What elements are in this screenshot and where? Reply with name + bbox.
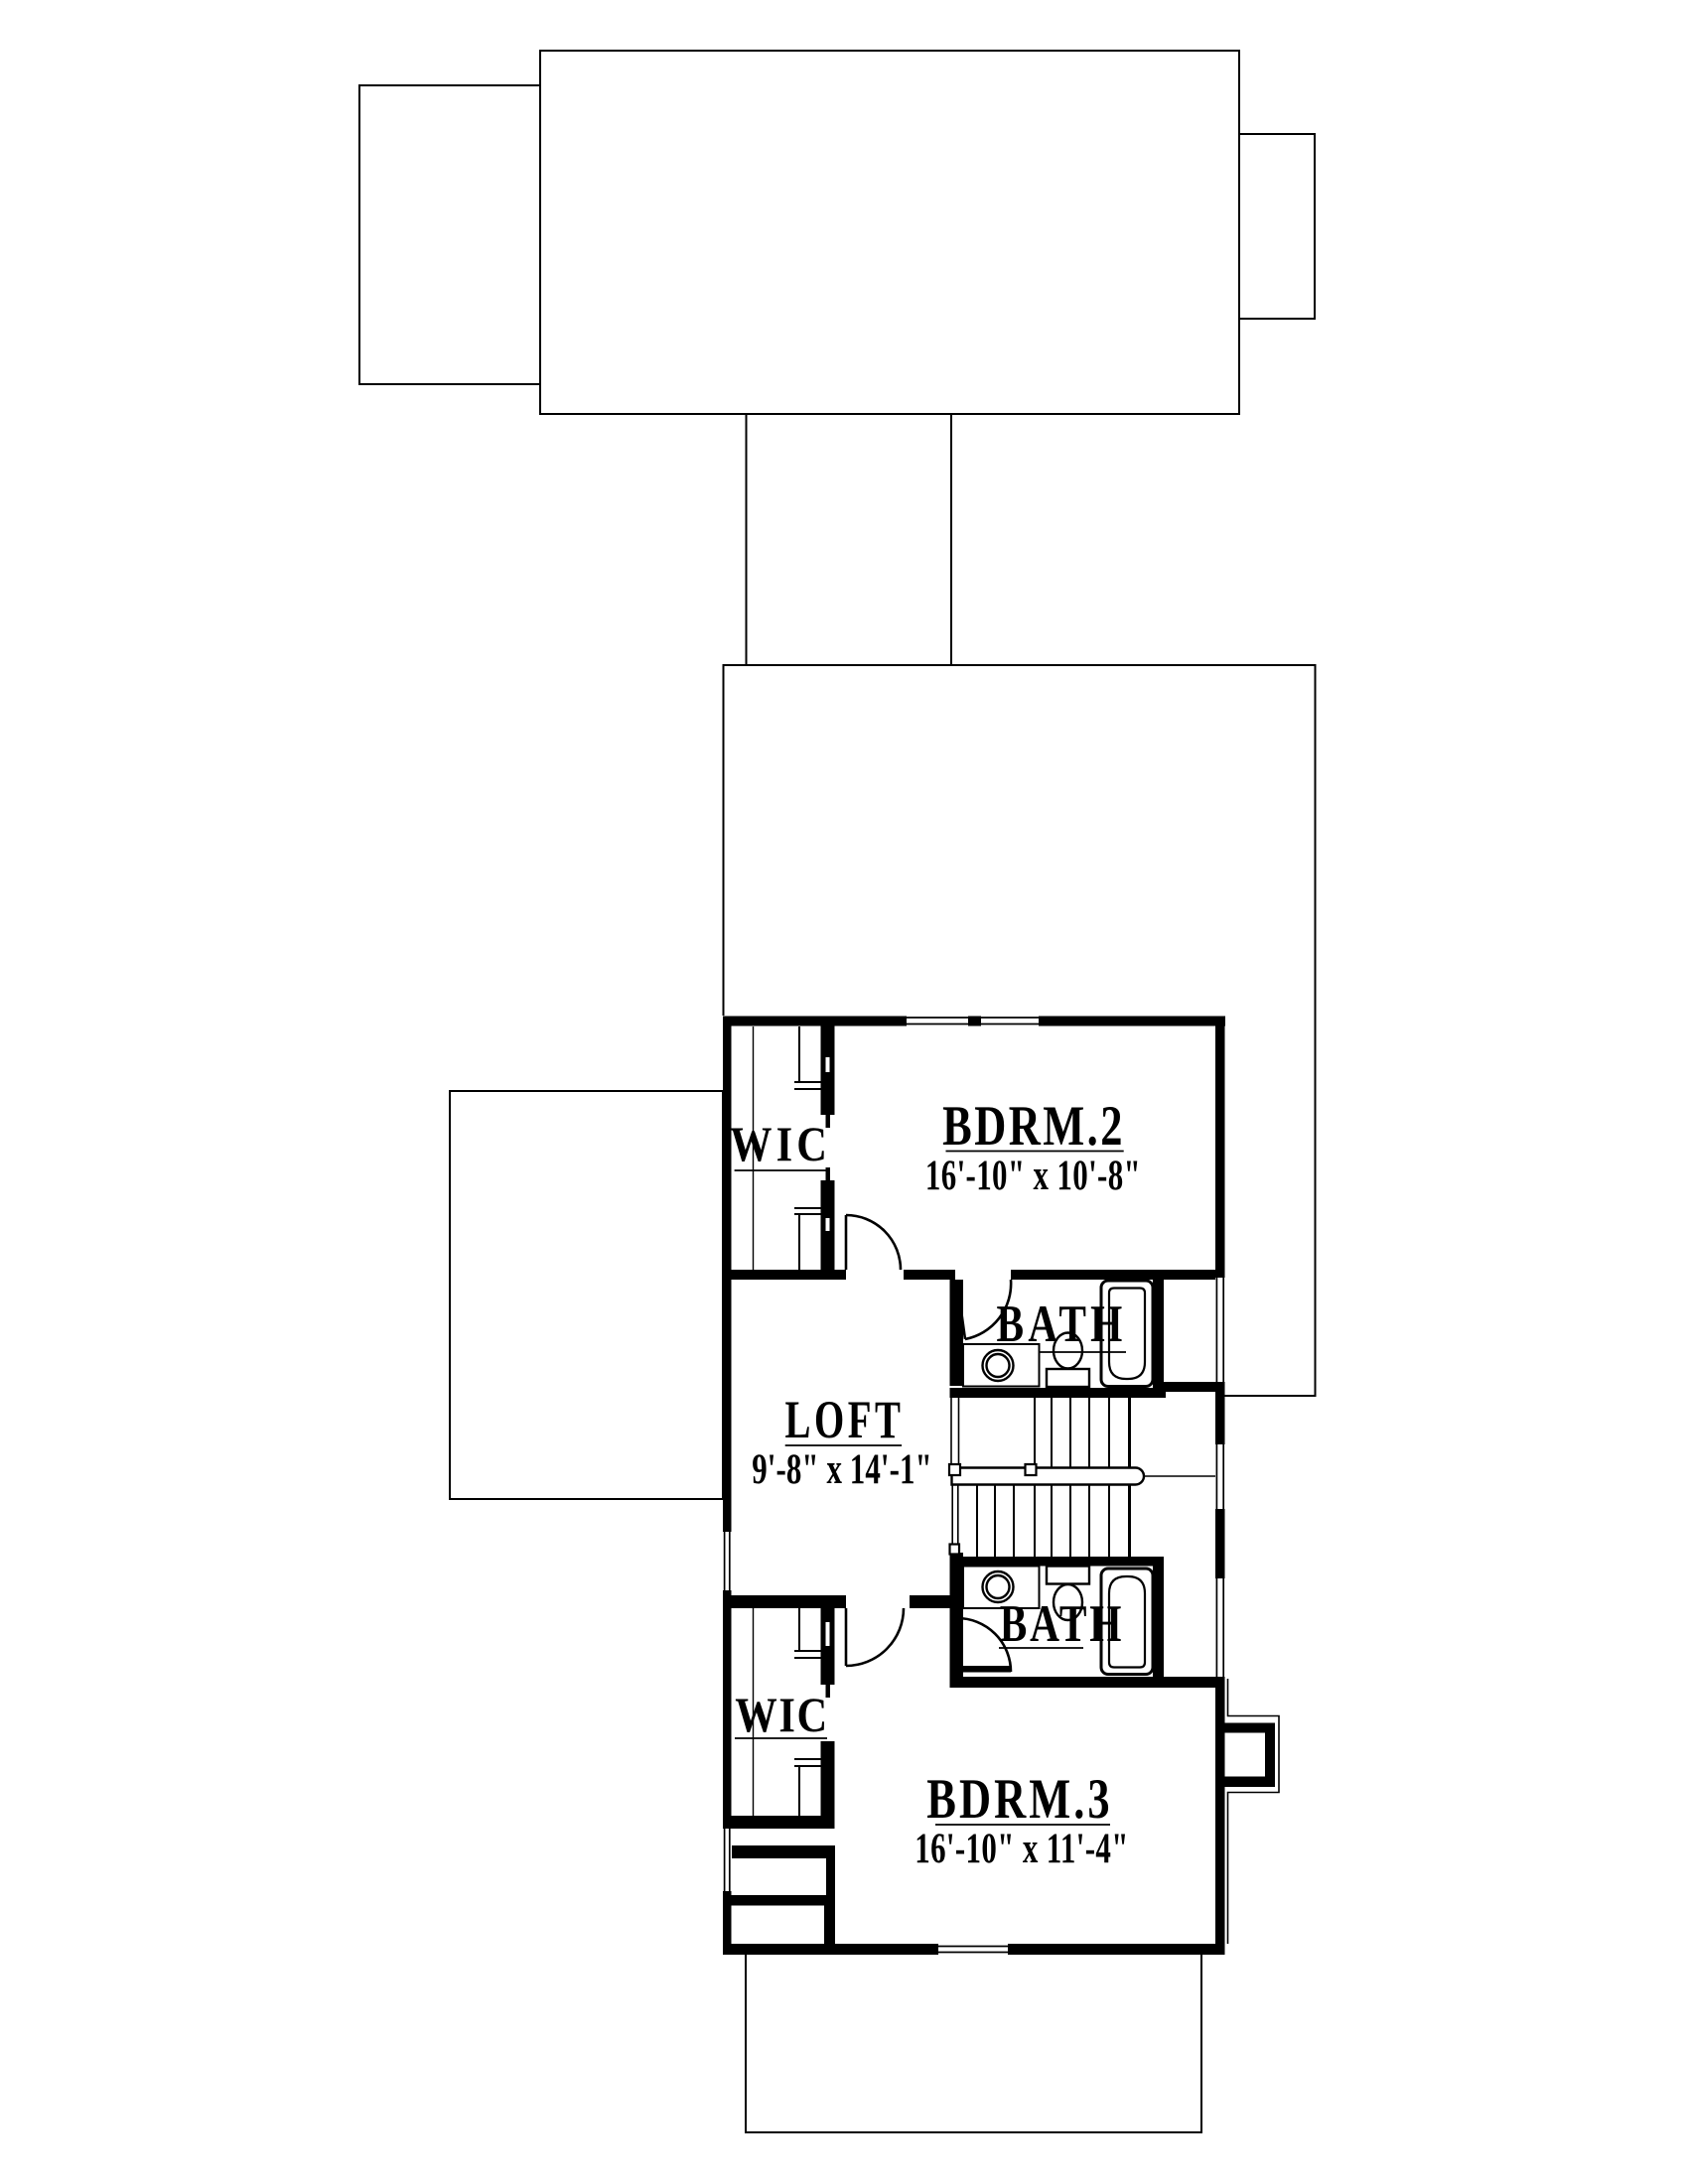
svg-text:9'-8" x 14'-1": 9'-8" x 14'-1" bbox=[752, 1446, 932, 1493]
svg-text:BATH: BATH bbox=[1000, 1595, 1125, 1653]
svg-text:WIC: WIC bbox=[730, 1118, 831, 1172]
svg-text:16'-10" x 10'-8": 16'-10" x 10'-8" bbox=[925, 1153, 1141, 1199]
svg-text:BDRM.3: BDRM.3 bbox=[926, 1768, 1112, 1832]
svg-text:16'-10" x 11'-4": 16'-10" x 11'-4" bbox=[914, 1826, 1129, 1872]
svg-text:LOFT: LOFT bbox=[785, 1391, 905, 1450]
svg-text:WIC: WIC bbox=[735, 1689, 829, 1743]
svg-text:BATH: BATH bbox=[997, 1296, 1127, 1353]
svg-text:BDRM.2: BDRM.2 bbox=[942, 1095, 1125, 1159]
